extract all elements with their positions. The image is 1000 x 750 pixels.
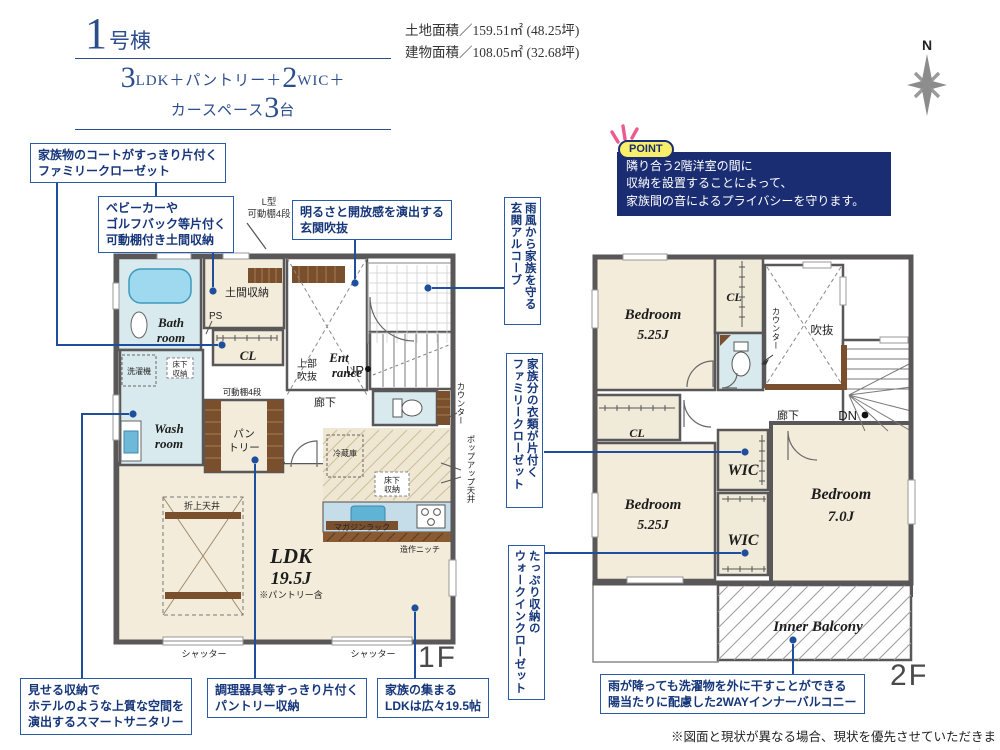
bathtub [129,269,191,303]
callout-pantry-storage: 調理器具等すっきり片付く パントリー収納 [207,678,367,718]
counter-label-2f: カウンター [771,307,781,350]
plan-summary: 3LDK＋パントリー＋2WIC＋ カースペース3台 [75,59,391,130]
point-line-3: 家族間の音によるプライバシーを守ります。 [626,193,882,210]
callout-genkan-alcove: 雨風から家族を守る 玄関アルコーブ [504,197,541,325]
hallway-label-1f: 廊下 [314,395,336,409]
plan-part-3: カースペース [171,103,264,119]
plan-part-1: LDK＋パントリー＋ [136,73,283,89]
callout-genkan-fukinuke: 明るさと開放感を演出する 玄関吹抜 [292,200,452,240]
wic1-label: WIC [727,462,758,479]
magazine-label: マガジンラック [334,522,390,532]
building-area: 建物面積／108.05㎡ (32.68坪) [405,42,579,64]
void-upper-label-2: 吹抜 [297,370,317,383]
building-number: 1 [85,9,107,58]
counter-label-1f: カウンター [456,382,466,425]
floorplan-flyer: 1号棟 3LDK＋パントリー＋2WIC＋ カースペース3台 土地面積／159.5… [0,0,1000,750]
callout-family-closet-1f: 家族物のコートがすっきり片付く ファミリークローゼット [30,143,226,183]
ps-label: PS [209,311,223,322]
fridge-label: 冷蔵庫 [333,448,357,458]
stair-rail-h [765,384,843,390]
ldk-label-2: 19.5J [271,568,313,588]
niche-label: 造作ニッチ [400,544,440,554]
floor2-label: 2F [890,659,925,690]
compass-icon: N [902,36,952,120]
callout-wic-2f: たっぷり収納の ウォークインクローゼット [508,545,545,700]
building-suffix: 号棟 [109,29,151,53]
plan-line-1: 3LDK＋パントリー＋2WIC＋ [75,63,391,93]
dn-dot [862,412,869,419]
washer-label: 洗濯機 [127,366,151,376]
toilet-icon-1f [393,399,422,417]
bath-label-1: Bath [157,315,184,330]
void-label-2f: 吹抜 [811,323,834,337]
point-line-2: 収納を設置することによって、 [626,175,882,192]
compass-rose [907,54,947,116]
point-badge: POINT [618,140,674,159]
hallway-label-2f: 廊下 [777,408,799,422]
compass-n-label: N [922,37,932,53]
underfloor2-label-1: 床下 [384,475,400,485]
callout-doma-storage: ベビーカーや ゴルフバック等片付く 可動棚付き土間収納 [98,196,234,253]
dn-label: DN [838,408,857,423]
wash-label-2: room [155,436,183,451]
bath-label-2: room [157,330,185,345]
balcony-label: Inner Balcony [772,619,863,635]
cl2-label-2f: CL [629,426,644,440]
coffered-label: 折上天井 [184,500,220,511]
bedroom2-label-2: 5.25J [637,518,670,533]
pantry-label-2: トリー [228,442,260,454]
stove-icon [417,505,445,528]
shutter-label-2: シャッター [350,649,395,659]
room-bedroom1 [595,257,715,390]
wash-basin [124,431,138,453]
cl1-label-2f: CL [726,290,741,304]
doma-label: 土間収納 [225,286,269,299]
plan-num-ldk: 3 [121,61,136,94]
floor1-label: 1F [418,641,457,674]
toilet-icon-2f [732,342,750,376]
plan-num-cars: 3 [264,91,279,124]
bedroom3-label-2: 7.0J [828,509,855,525]
plan-num-wic: 2 [282,61,297,94]
callout-family-closet-2f: 家族分の衣類が片付く ファミリークローゼット [506,353,543,508]
bath-vanity [131,312,147,338]
callout-ldk-gather: 家族の集まる LDKは広々19.5帖 [377,678,489,718]
bedroom3-label-1: Bedroom [810,486,871,503]
wic2-label: WIC [727,532,758,549]
plan-part-4: 台 [279,103,295,119]
point-line-1: 隣り合う2階洋室の間に [626,158,882,175]
plan-line-2: カースペース3台 [75,93,391,123]
wash-label-1: Wash [154,421,183,436]
pantry-label-1: パン [233,428,255,440]
land-area: 土地面積／159.51㎡ (48.25坪) [405,20,579,42]
up-dot [365,366,371,372]
ldk-label-1: LDK [269,544,314,568]
stair-rail-v [841,345,847,390]
shutter-label-1: シャッター [181,649,226,659]
bedroom1-label-1: Bedroom [624,307,682,323]
up-label: UP [346,363,364,378]
building-title: 1号棟 [75,12,391,59]
floor2-plan: Bedroom 5.25J CL カウンター 吹抜 廊下 DN CL Bedro… [585,245,925,690]
plan-part-2: WIC＋ [297,73,345,89]
popup-ceiling-label: ポップアップ天井 [466,435,476,504]
callout-inner-balcony: 雨が降っても洗濯物を外に干すことができる 陽当たりに配慮した2WAYインナーバル… [600,674,865,714]
bedroom1-label-2: 5.25J [637,328,670,343]
area-info: 土地面積／159.51㎡ (48.25坪) 建物面積／108.05㎡ (32.6… [405,20,579,65]
disclaimer: ※図面と現状が異なる場合、現状を優先させていただきます。 [648,726,996,750]
floor1-plan: Bath room 土間収納 PS CL 洗濯機 床下 収納 Wash room… [105,245,485,675]
underfloor1-label-2: 収納 [173,368,188,378]
point-box: 隣り合う2階洋室の間に 収納を設置することによって、 家族間の音によるプライバシ… [617,152,891,216]
cl-label-1f: CL [240,348,257,363]
callout-smart-sanitary: 見せる収納で ホテルのような上質な空間を 演出するスマートサニタリー [20,678,192,735]
underfloor2-label-2: 収納 [384,484,400,494]
title-block: 1号棟 3LDK＋パントリー＋2WIC＋ カースペース3台 [75,12,391,130]
roof-area [593,582,718,662]
bedroom2-label-1: Bedroom [624,497,682,513]
ldk-note-label: ※パントリー含 [259,589,322,600]
shelf4-label: 可動棚4段 [223,387,262,397]
void-upper-label-1: 上部 [297,357,317,370]
underfloor1-label-1: 床下 [173,359,188,369]
